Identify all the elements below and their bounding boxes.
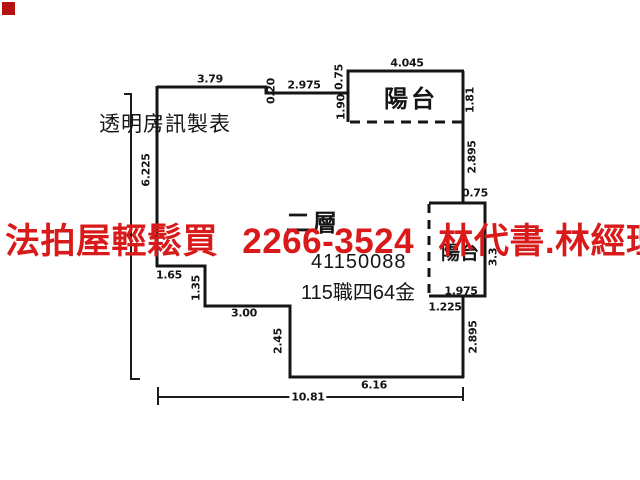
dim-balcony-width: 4.045: [390, 57, 423, 70]
dim-balcony-step: 0.75: [333, 64, 346, 90]
dim-right-step: 0.75: [462, 187, 488, 200]
dim-right-lower: 2.895: [467, 320, 480, 353]
dim-balcony-right-height: 1.81: [464, 87, 477, 113]
dim-right-upper: 2.895: [466, 140, 479, 173]
dim-step2-height: 2.45: [272, 328, 285, 354]
dim-step1-height: 1.35: [190, 275, 203, 301]
dim-top-a: 3.79: [197, 73, 223, 86]
dim-left-height: 6.225: [140, 153, 153, 186]
dim-step1-width: 1.65: [156, 269, 182, 282]
dim-step2-width: 3.00: [231, 307, 257, 320]
ad-watermark-text: 法拍屋輕鬆買 2266-3524 林代書.林經理: [5, 213, 640, 264]
balcony-top-label: 陽台: [384, 79, 438, 114]
dim-top-b: 2.975: [287, 79, 320, 92]
credit-text: 透明房訊製表: [99, 108, 231, 138]
corner-red-square: [2, 2, 15, 15]
area-text: 115職四64金: [301, 276, 415, 305]
dim-balcony-left-height: 1.90: [335, 94, 348, 120]
dim-bottom-width: 6.16: [361, 379, 387, 392]
dim-rbalcony-bottom: 1.225: [428, 301, 461, 314]
dim-rbalcony-width: 1.975: [444, 285, 477, 298]
dim-total-width: 10.81: [289, 391, 326, 404]
floorplan-page: 透明房訊製表 二層 41150088 115職四64金 陽台 陽台 3.79 2…: [0, 0, 640, 480]
dim-top-jog: 0.20: [265, 78, 278, 104]
